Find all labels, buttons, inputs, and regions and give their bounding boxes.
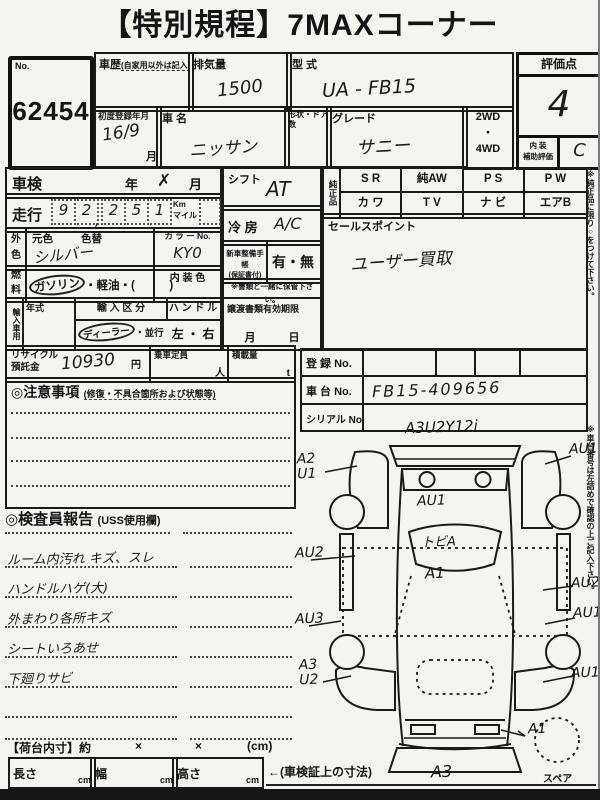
inspector-report: ◎検査員報告 (USS使用欄) ルーム内汚れ キズ、スレ ハンドルハゲ(大) 外…	[5, 508, 292, 740]
recycle-value: 10930	[60, 350, 116, 375]
mileage-digit: 5	[124, 199, 149, 225]
oem-cell-ps: P S	[464, 169, 525, 193]
score-box: 評価点 4 内 装 補助評価 C	[516, 52, 600, 170]
recycle-label: リサイクル 預託金	[11, 350, 58, 375]
shift-value: AT	[266, 177, 290, 201]
shape-doors-cell: 形状・ドア数	[284, 106, 332, 168]
mileage-empty-cell	[199, 199, 221, 225]
grade-value: サニー	[327, 128, 466, 161]
import-class-label: 輸 入 区 分	[76, 299, 168, 321]
lot-label: No.	[15, 61, 30, 71]
chassis-label: 車 台 No.	[306, 383, 352, 399]
diagram-note-front-bumper: A3U2Y12i	[405, 419, 478, 437]
service-book-options: 有・無	[272, 252, 314, 272]
service-book-label: 新車整備手帳	[224, 248, 266, 270]
length-label: 長さ	[13, 765, 37, 782]
oem-cell-pw: P W	[525, 169, 586, 193]
height-label: 高さ	[177, 765, 201, 782]
displacement-label: 排気量	[190, 54, 290, 72]
history-cell: 車歴(自家用以外は記入)	[94, 52, 194, 112]
mileage-label: 走行	[12, 204, 42, 225]
cargo-label: 【荷台内寸】約	[7, 739, 91, 756]
transfer-docs-fields: 月 日	[224, 329, 320, 345]
year-type-cell: 年式	[24, 299, 76, 349]
car-name-cell: 車 名 ニッサン	[156, 106, 290, 168]
caution-box: ◎注意事項 (修復・不具合箇所および状態等)	[5, 377, 296, 509]
transfer-docs-label: 譲渡書類有効期限	[227, 302, 299, 315]
shaken-mark: ✗	[157, 171, 171, 191]
color-no-value: KY0	[155, 244, 220, 262]
diagram-note-left-front-fender: A2 U1	[296, 452, 316, 482]
diagram-note-left-rear-quarter: A3 U2	[298, 658, 318, 688]
fuel-option-gasoline: ガソリン	[28, 272, 86, 298]
import-class-rest: ・並行	[135, 328, 164, 339]
color-label: 外 色	[7, 229, 27, 269]
handle-options: 左 ・ 右	[166, 325, 220, 342]
base-color-label: 元色	[32, 231, 53, 246]
model-code-cell: 型 式 UA - FB15	[286, 52, 514, 112]
oem-cell-aw: 純AW	[402, 169, 463, 193]
inspector-subtitle: (USS使用欄)	[98, 515, 161, 527]
registration-label: 登 録 No.	[306, 355, 352, 371]
width-cell: 幅 cm	[90, 757, 178, 789]
cargo-unit: (cm)	[247, 739, 272, 753]
interior-score-row: 内 装 補助評価 C	[519, 135, 599, 167]
sales-point-box: セールスポイント ユーザー買取	[322, 213, 588, 351]
height-cell: 高さ cm	[172, 757, 264, 789]
displacement-value: 1500	[189, 73, 291, 104]
car-name-label: 車 名	[158, 108, 288, 126]
lot-number: 62454	[12, 96, 90, 127]
car-name-value: ニッサン	[157, 129, 288, 163]
grade-cell: グレード サニー	[326, 106, 468, 168]
color-no-cell: カ ラ ー No. KY0	[153, 229, 220, 269]
capacity-label: 乗車定員	[151, 347, 229, 361]
chassis-row: 車 台 No. FB15-409656	[302, 377, 586, 405]
keep-with-documents-note: ※書類と一緒に保管下さい。	[222, 278, 322, 299]
interior-color-cell: 内 装 色	[153, 267, 220, 301]
diagram-note-tail-lamp: A1	[528, 722, 547, 737]
score-value: 4	[519, 77, 599, 133]
drive-type-cell: 2WD ・ 4WD	[462, 106, 514, 170]
inspector-note: ハンドルハゲ(大)	[7, 577, 108, 598]
diagram-note-right-rear-quarter: AU1	[571, 666, 600, 682]
shape-doors-label: 形状・ドア数	[286, 108, 330, 130]
damage-diagram: A3U2Y12i A2 U1 AU1 AU1 トビA A1 AU2 AU2 AU…	[295, 420, 600, 788]
caution-subtitle: (修復・不具合箇所および状態等)	[84, 389, 216, 400]
shaken-label: 車検	[12, 173, 42, 194]
model-code-label: 型 式	[288, 54, 512, 72]
interior-score-value: C	[560, 138, 599, 167]
ac-value: A/C	[274, 214, 302, 233]
sales-point-label: セールスポイント	[328, 218, 416, 234]
handle-label: ハ ン ド ル	[166, 299, 220, 321]
shaken-year-label: 年	[125, 174, 138, 193]
inspector-note: 下廻りサビ	[7, 667, 72, 687]
history-label: 車歴	[96, 54, 121, 72]
registration-row: 登 録 No.	[302, 350, 586, 377]
length-cell: 長さ cm	[8, 757, 96, 789]
mileage-unit: Km マイル	[173, 199, 197, 221]
mileage-digit: 1	[147, 199, 172, 225]
diagram-note-left-front-door: AU2	[295, 546, 324, 562]
import-row: 輸入車用 年式 輸 入 区 分 ディーラー・並行 ハ ン ド ル 左 ・ 右	[5, 297, 222, 351]
shift-label: シフト	[228, 171, 261, 187]
page-bottom-bar	[0, 789, 600, 800]
oem-cell-sr: S R	[341, 169, 402, 193]
auction-sheet: 【特別規程】7MAXコーナー No. 62454 車歴(自家用以外は記入) 排気…	[0, 0, 600, 800]
height-unit: cm	[246, 775, 259, 785]
lot-number-box: No. 62454	[8, 56, 94, 170]
width-label: 幅	[95, 765, 107, 782]
sales-point-value: ユーザー買取	[349, 243, 452, 275]
inspector-note: シートいろあせ	[7, 637, 98, 658]
load-cell: 積載量 t	[227, 347, 294, 381]
history-note: (自家用以外は記入)	[121, 61, 190, 71]
diagram-note-right-front-door: AU2	[571, 576, 600, 592]
capacity-cell: 乗車定員 人	[149, 347, 229, 381]
grade-label: グレード	[328, 108, 466, 126]
transfer-docs-cell: 譲渡書類有効期限 月 日	[222, 297, 322, 351]
color-no-label: カ ラ ー No.	[155, 229, 220, 242]
year-type-label: 年式	[24, 299, 74, 314]
load-label: 積載量	[229, 347, 294, 361]
interior-color-label: 内 装 色	[155, 267, 220, 284]
caution-title: ◎注意事項	[11, 384, 79, 400]
sheet-title: 【特別規程】7MAXコーナー	[0, 0, 600, 44]
cargo-row: 【荷台内寸】約 × × (cm)	[5, 739, 292, 757]
cargo-x1: ×	[135, 739, 142, 753]
inspector-title: ◎検査員報告	[5, 511, 93, 528]
interior-score-label: 内 装 補助評価	[519, 138, 560, 167]
chassis-value: FB15-409656	[372, 378, 502, 402]
diagram-note-left-rear-door: AU3	[295, 612, 324, 628]
fuel-label: 燃 料	[7, 267, 27, 301]
oem-label: 純正品	[324, 169, 341, 217]
displacement-cell: 排気量 1500	[188, 52, 292, 112]
diagram-note-right-rear-door: AU1	[573, 606, 600, 622]
diagram-note-roof: A1	[425, 566, 445, 582]
model-code-value: UA - FB15	[288, 70, 513, 104]
import-label: 輸入車用	[7, 299, 24, 349]
diagram-note-right-front-fender: AU1	[569, 442, 598, 458]
cargo-x2: ×	[195, 739, 202, 753]
spare-tire-label: スペア	[543, 770, 572, 785]
ac-label: 冷 房	[228, 217, 258, 236]
recycle-unit: 円	[131, 356, 141, 371]
diagram-note-hood: AU1	[417, 494, 446, 510]
car-outline-drawing	[295, 420, 600, 788]
diagram-note-rear-bumper: A3	[431, 764, 453, 782]
first-registration-cell: 初度登録年月 16/9 月	[94, 106, 162, 168]
diagram-note-windshield: トビA	[421, 535, 456, 550]
inspector-note: 外まわり各所キズ	[7, 607, 111, 628]
score-label: 評価点	[519, 55, 599, 77]
shaken-month-label: 月	[189, 174, 202, 193]
import-class-dealer: ディーラー	[78, 320, 136, 344]
mileage-digit: 9	[51, 199, 76, 225]
oem-grid: 純正品 S R 純AW P S P W カ ワ T V ナ ビ エアB	[322, 167, 588, 219]
mileage-digit: 2	[101, 199, 126, 225]
